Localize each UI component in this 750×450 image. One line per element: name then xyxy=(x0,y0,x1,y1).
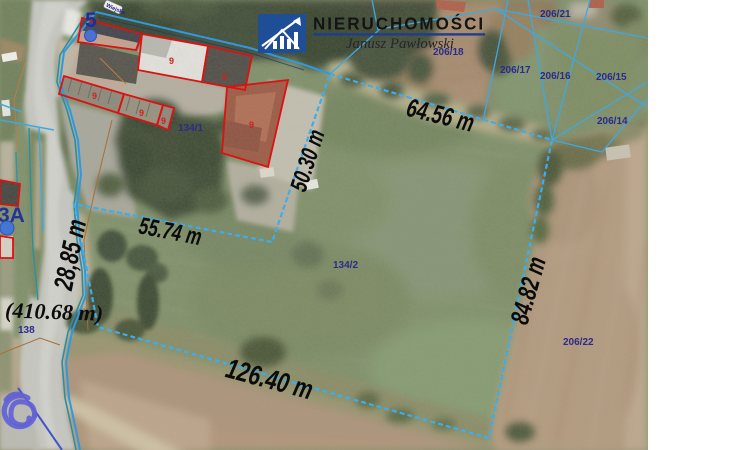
svg-text:9: 9 xyxy=(222,72,227,82)
svg-text:206/15: 206/15 xyxy=(596,72,627,83)
svg-text:9: 9 xyxy=(161,116,166,126)
svg-text:9: 9 xyxy=(139,108,144,118)
svg-text:9: 9 xyxy=(169,56,174,66)
svg-text:206/21: 206/21 xyxy=(540,9,571,20)
svg-text:9: 9 xyxy=(92,91,97,101)
svg-text:9: 9 xyxy=(249,120,254,130)
svg-text:5: 5 xyxy=(85,9,97,32)
svg-text:NIERUCHOMOŚCI: NIERUCHOMOŚCI xyxy=(313,13,485,34)
svg-text:134/2: 134/2 xyxy=(333,260,358,271)
svg-text:138: 138 xyxy=(18,325,35,336)
svg-text:(410.68 m): (410.68 m) xyxy=(5,297,104,325)
svg-text:206/16: 206/16 xyxy=(540,71,571,82)
svg-text:206/22: 206/22 xyxy=(563,337,594,348)
svg-text:206/17: 206/17 xyxy=(500,65,531,76)
svg-text:206/14: 206/14 xyxy=(597,116,628,127)
svg-text:134/1: 134/1 xyxy=(178,123,203,134)
svg-text:Janusz Pawłowski: Janusz Pawłowski xyxy=(346,36,454,52)
